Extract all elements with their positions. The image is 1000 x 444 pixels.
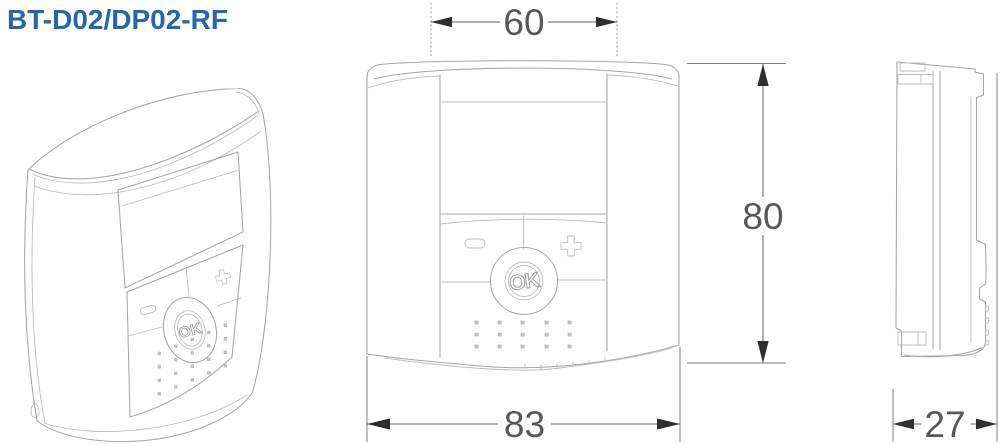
dimension-60-value: 60 <box>503 2 544 43</box>
dimension-80-value: 80 <box>742 196 783 237</box>
dimension-80-arrow-bottom <box>757 341 768 363</box>
dimension-80-arrow-top <box>757 64 768 86</box>
front-view: OK <box>367 61 679 370</box>
side-backplate-outline <box>896 62 986 357</box>
dimension-27-arrow-left <box>893 419 914 430</box>
perspective-view: OK <box>25 88 271 441</box>
side-view <box>896 62 989 357</box>
perspective-body-outline <box>25 88 271 441</box>
dimension-27-arrow-right <box>976 419 997 430</box>
technical-drawing: OK <box>0 0 1000 444</box>
dimension-27-value: 27 <box>924 404 965 444</box>
dimension-60-arrow-right <box>596 17 617 27</box>
dimension-60-arrow-left <box>431 17 452 27</box>
dimension-83-arrow-right <box>657 418 680 429</box>
front-ok-label: OK <box>508 268 541 295</box>
dimension-body-height: 80 <box>687 64 786 364</box>
dimension-83-arrow-left <box>367 418 390 429</box>
dimension-display-width: 60 <box>431 2 617 56</box>
drawing-canvas: BT-D02/DP02-RF OK <box>0 0 1000 444</box>
dimension-83-value: 83 <box>504 404 545 444</box>
